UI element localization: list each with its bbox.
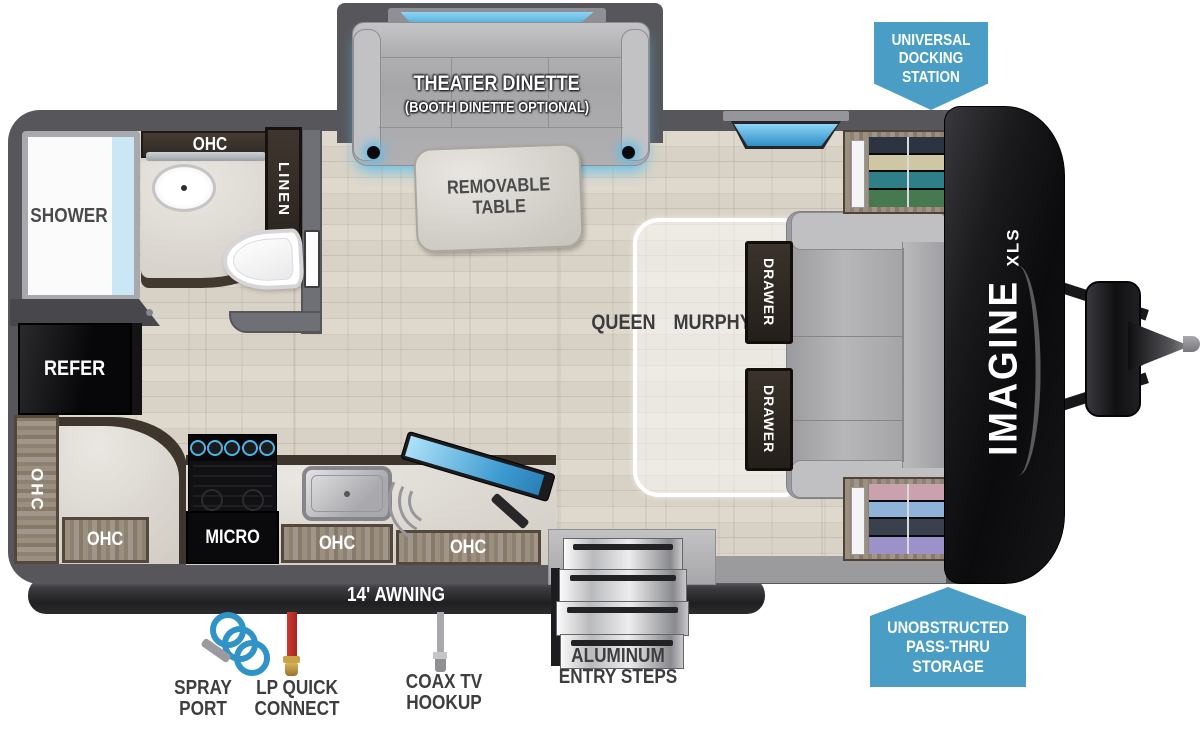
burner	[207, 440, 223, 456]
bathroom-sink	[152, 164, 216, 212]
burner	[190, 440, 206, 456]
bed-drawer-1: DRAWER	[745, 241, 793, 344]
coil-ring	[234, 640, 270, 676]
shelf-divider	[907, 484, 909, 554]
toilet-seat	[232, 237, 294, 282]
kitchen-sink	[302, 466, 392, 521]
wardrobe-clothes-shelves	[869, 137, 945, 207]
shower-label: SHOWER	[28, 137, 110, 295]
brand-logo: IMAGINE XLS	[982, 227, 1027, 463]
wardrobe-top	[843, 130, 950, 214]
step-2	[559, 569, 687, 603]
wardrobe-door-panel	[851, 140, 865, 208]
burner-strip	[189, 435, 276, 461]
microwave: MICRO	[186, 511, 279, 564]
step-tread	[573, 544, 672, 550]
brand-model: IMAGINE	[982, 279, 1027, 456]
murphy-sofa	[786, 211, 950, 499]
floorplan-canvas: 14' AWNING THEATER DINETTE (BOOTH DINETT…	[0, 0, 1200, 744]
kitchen-ohc-1: OHC	[62, 517, 149, 563]
lp-hose	[287, 612, 297, 658]
coax-connector-collar	[433, 652, 447, 659]
sofa-armrest-left	[353, 29, 381, 161]
bedroom-window-glass-inner	[734, 124, 838, 146]
burner	[242, 440, 258, 456]
door-hinge-dot	[146, 309, 153, 316]
bedroom-window-frame	[723, 111, 849, 121]
range-stove	[188, 434, 277, 522]
wardrobe-bottom	[843, 477, 950, 561]
brand-trim: XLS	[1004, 227, 1024, 266]
coax-tv-hookup-label: COAX TV HOOKUP	[400, 672, 489, 714]
cupholder-right	[622, 146, 635, 159]
entry-steps-label: ALUMINUM ENTRY STEPS	[549, 646, 687, 688]
lp-fitting-body	[285, 663, 298, 676]
murphy-back-cushions	[902, 242, 949, 468]
removable-table: REMOVABLE TABLE	[413, 143, 584, 253]
toilet-privacy-wall	[229, 311, 322, 333]
front-cap: IMAGINE XLS	[944, 106, 1065, 584]
lp-fitting-collar	[283, 656, 300, 663]
lp-quick-connect-label: LP QUICK CONNECT	[248, 678, 347, 720]
burner	[224, 440, 240, 456]
step-tread	[567, 607, 677, 613]
kitchen-ohc-2: OHC	[281, 524, 393, 563]
hitch-ball-tip	[1183, 336, 1200, 352]
coax-cable	[437, 612, 444, 654]
shower-glass-door	[112, 137, 134, 295]
oven-ring-left	[201, 489, 223, 511]
step-tread	[570, 575, 676, 581]
shelf-divider	[907, 137, 909, 207]
docking-station-badge: UNIVERSAL DOCKING STATION	[874, 22, 988, 110]
sofa-back-cushions	[353, 23, 649, 58]
pass-thru-storage-badge: UNOBSTRUCTED PASS-THRU STORAGE	[870, 587, 1026, 687]
oven-ring-right	[242, 489, 264, 511]
cupholder-left	[367, 146, 380, 159]
refrigerator-door-edge	[132, 323, 142, 415]
spray-port-label: SPRAY PORT	[169, 678, 236, 720]
step-1	[563, 538, 683, 571]
wardrobe-door-panel	[851, 487, 865, 555]
refrigerator: REFER	[18, 323, 132, 415]
theater-dinette-label: THEATER DINETTE (BOOTH DINETTE OPTIONAL)	[390, 72, 604, 116]
sofa-armrest-right	[621, 29, 649, 161]
sofa-seat-edge	[379, 127, 623, 128]
wardrobe-clothes-shelves	[869, 484, 945, 554]
kitchen-ohc-wall-cabinet: OHC	[14, 415, 59, 564]
spray-port-coil	[206, 612, 266, 672]
murphy-seam-h2	[791, 420, 903, 421]
shower-partition-wall	[10, 299, 160, 326]
sink-drain	[344, 491, 350, 497]
bathroom-pocket-door	[304, 230, 320, 288]
bed-drawer-2: DRAWER	[745, 368, 793, 471]
burner	[259, 440, 275, 456]
murphy-seam-v	[903, 248, 904, 462]
shower: SHOWER	[22, 131, 140, 301]
vanity-shelf	[146, 152, 266, 161]
murphy-seam-h1	[791, 336, 903, 337]
sink-drain	[181, 185, 187, 191]
bedroom-window-glass	[731, 121, 841, 149]
step-3	[556, 601, 689, 636]
